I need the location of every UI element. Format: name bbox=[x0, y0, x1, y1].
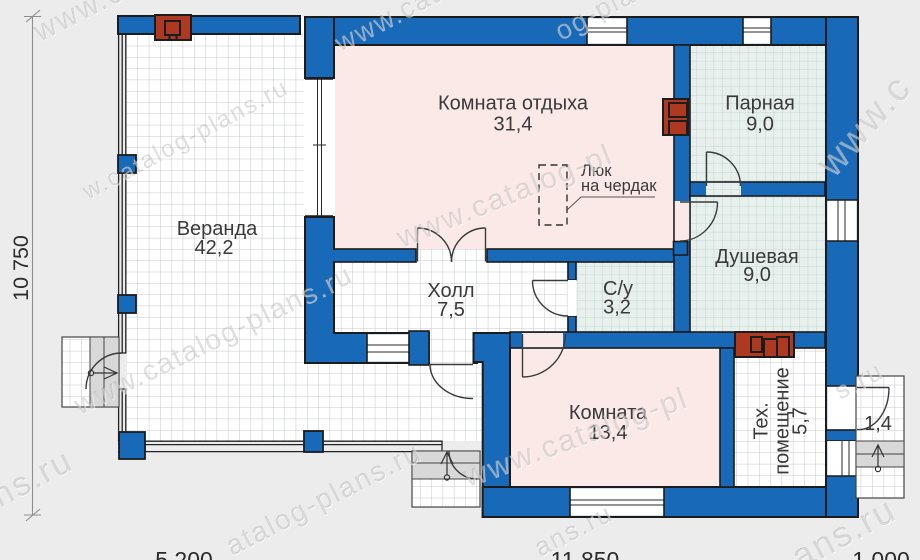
svg-text:9,0: 9,0 bbox=[743, 264, 771, 286]
svg-text:1,4: 1,4 bbox=[864, 413, 892, 435]
svg-text:5,7: 5,7 bbox=[790, 407, 812, 435]
svg-text:Тех.: Тех. bbox=[751, 402, 773, 439]
svg-text:31,4: 31,4 bbox=[494, 114, 533, 136]
svg-text:9,0: 9,0 bbox=[746, 114, 774, 136]
svg-text:7,5: 7,5 bbox=[437, 299, 465, 321]
svg-text:Парная: Парная bbox=[725, 93, 795, 115]
svg-text:10 750: 10 750 bbox=[9, 235, 33, 301]
svg-text:5 200: 5 200 bbox=[155, 547, 213, 560]
svg-text:3,2: 3,2 bbox=[603, 297, 631, 319]
svg-text:1 000: 1 000 bbox=[852, 547, 910, 560]
svg-text:42,2: 42,2 bbox=[195, 237, 234, 259]
svg-text:Комната отдыха: Комната отдыха bbox=[438, 93, 589, 115]
